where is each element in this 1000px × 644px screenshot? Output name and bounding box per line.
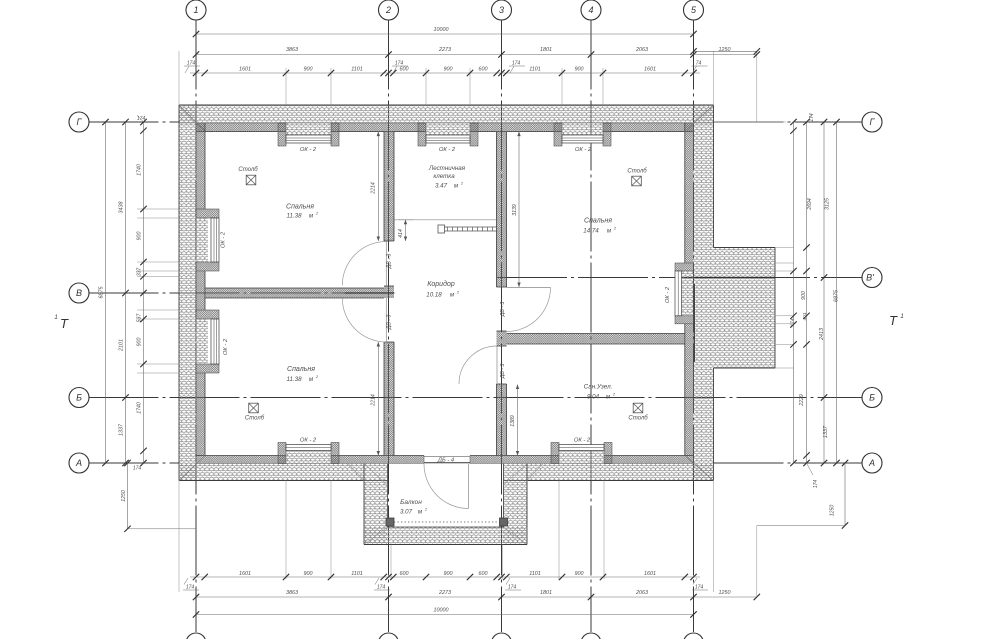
svg-text:1740: 1740 bbox=[137, 402, 143, 414]
svg-text:900: 900 bbox=[575, 67, 584, 73]
svg-text:174: 174 bbox=[187, 61, 196, 67]
svg-text:1601: 1601 bbox=[239, 67, 251, 73]
svg-text:1250: 1250 bbox=[719, 590, 731, 596]
svg-text:3.07: 3.07 bbox=[400, 509, 413, 516]
svg-text:2: 2 bbox=[385, 5, 391, 15]
svg-text:1: 1 bbox=[193, 5, 198, 15]
svg-text:1101: 1101 bbox=[351, 571, 363, 577]
svg-text:900: 900 bbox=[444, 67, 453, 73]
svg-text:900: 900 bbox=[137, 232, 143, 241]
svg-text:1101: 1101 bbox=[529, 67, 541, 73]
svg-text:2101: 2101 bbox=[119, 339, 125, 352]
svg-text:174: 174 bbox=[695, 585, 704, 591]
svg-text:ДВ - 3: ДВ - 3 bbox=[500, 302, 506, 318]
svg-text:14.74: 14.74 bbox=[583, 228, 599, 235]
svg-text:Столб: Столб bbox=[238, 167, 258, 173]
svg-text:Коридор: Коридор bbox=[427, 280, 455, 288]
svg-text:ОК - 2: ОК - 2 bbox=[300, 438, 317, 444]
svg-text:10000: 10000 bbox=[434, 608, 449, 614]
svg-text:Балкон: Балкон bbox=[400, 499, 422, 506]
svg-text:1250: 1250 bbox=[719, 47, 731, 53]
svg-text:174: 174 bbox=[133, 466, 142, 472]
svg-text:900: 900 bbox=[304, 571, 313, 577]
svg-text:Спальня: Спальня bbox=[287, 366, 315, 373]
svg-text:74: 74 bbox=[696, 61, 702, 67]
svg-text:Столб: Столб bbox=[627, 169, 647, 175]
svg-text:1801: 1801 bbox=[540, 590, 552, 596]
svg-text:ДБ - 4: ДБ - 4 bbox=[437, 458, 454, 464]
svg-text:Т: Т bbox=[60, 316, 69, 331]
svg-text:1601: 1601 bbox=[644, 67, 656, 73]
svg-text:174: 174 bbox=[186, 585, 195, 591]
svg-text:ОК - 2: ОК - 2 bbox=[221, 231, 227, 248]
svg-text:1: 1 bbox=[900, 314, 903, 320]
svg-text:3438: 3438 bbox=[119, 202, 125, 214]
svg-text:ОК - 2: ОК - 2 bbox=[574, 438, 591, 444]
svg-text:1: 1 bbox=[54, 315, 57, 321]
svg-text:600: 600 bbox=[400, 67, 409, 73]
svg-text:ДВ - 3: ДВ - 3 bbox=[500, 364, 506, 380]
svg-text:В: В bbox=[76, 288, 82, 298]
svg-text:10.18: 10.18 bbox=[426, 292, 442, 299]
svg-text:174: 174 bbox=[809, 113, 815, 122]
svg-text:600: 600 bbox=[479, 571, 488, 577]
svg-text:174: 174 bbox=[137, 116, 146, 122]
svg-text:1337: 1337 bbox=[119, 423, 125, 436]
svg-text:2273: 2273 bbox=[438, 47, 451, 53]
svg-text:Т: Т bbox=[889, 313, 898, 328]
svg-text:1389: 1389 bbox=[510, 415, 516, 427]
svg-text:2413: 2413 bbox=[819, 328, 825, 341]
svg-text:6875: 6875 bbox=[834, 289, 840, 302]
svg-text:В': В' bbox=[866, 273, 874, 283]
svg-text:174: 174 bbox=[377, 585, 386, 591]
svg-text:2273: 2273 bbox=[438, 590, 451, 596]
svg-text:174: 174 bbox=[512, 61, 521, 67]
svg-text:1337: 1337 bbox=[823, 425, 829, 438]
svg-text:337: 337 bbox=[137, 268, 143, 277]
svg-text:401: 401 bbox=[802, 312, 808, 320]
svg-text:11.38: 11.38 bbox=[286, 213, 302, 220]
svg-text:ОК - 2: ОК - 2 bbox=[300, 147, 317, 153]
svg-text:ДВ - 3: ДВ - 3 bbox=[387, 254, 393, 270]
svg-text:ОК - 2: ОК - 2 bbox=[665, 286, 671, 303]
svg-text:414: 414 bbox=[398, 229, 404, 238]
svg-text:3: 3 bbox=[499, 5, 504, 15]
svg-text:Столб: Столб bbox=[628, 416, 648, 422]
svg-text:1250: 1250 bbox=[121, 490, 127, 502]
svg-text:2214: 2214 bbox=[371, 394, 377, 407]
svg-text:2063: 2063 bbox=[635, 590, 648, 596]
svg-text:174: 174 bbox=[813, 480, 819, 489]
svg-text:9.04: 9.04 bbox=[587, 394, 600, 401]
svg-text:Сан.Узел.: Сан.Узел. bbox=[584, 384, 613, 391]
svg-text:Б: Б bbox=[869, 393, 875, 403]
svg-text:2063: 2063 bbox=[635, 47, 648, 53]
svg-text:174: 174 bbox=[508, 585, 517, 591]
svg-text:1740: 1740 bbox=[137, 164, 143, 176]
svg-text:А: А bbox=[868, 458, 875, 468]
svg-text:11.38: 11.38 bbox=[286, 376, 302, 383]
svg-text:клетка: клетка bbox=[433, 173, 455, 180]
svg-text:ДВ - 3: ДВ - 3 bbox=[387, 315, 393, 331]
svg-text:1101: 1101 bbox=[529, 571, 541, 577]
svg-text:Столб: Столб bbox=[245, 416, 265, 422]
svg-text:900: 900 bbox=[575, 571, 584, 577]
svg-text:900: 900 bbox=[137, 338, 143, 347]
svg-text:3863: 3863 bbox=[286, 590, 298, 596]
svg-text:2214: 2214 bbox=[371, 182, 377, 195]
svg-text:2694: 2694 bbox=[807, 198, 813, 211]
svg-text:537: 537 bbox=[137, 313, 143, 323]
svg-text:1601: 1601 bbox=[644, 571, 656, 577]
svg-text:1601: 1601 bbox=[239, 571, 251, 577]
svg-text:ОК - 2: ОК - 2 bbox=[575, 147, 592, 153]
svg-text:900: 900 bbox=[304, 67, 313, 73]
svg-text:1250: 1250 bbox=[830, 505, 836, 517]
svg-text:Спальня: Спальня bbox=[584, 218, 612, 225]
svg-text:3.47: 3.47 bbox=[435, 183, 448, 190]
svg-text:3139: 3139 bbox=[512, 204, 518, 216]
svg-text:4: 4 bbox=[588, 5, 593, 15]
svg-text:6875: 6875 bbox=[99, 286, 105, 299]
svg-text:Лестничная: Лестничная bbox=[428, 165, 466, 172]
svg-text:Б: Б bbox=[76, 393, 82, 403]
svg-text:А: А bbox=[75, 458, 82, 468]
svg-text:600: 600 bbox=[400, 571, 409, 577]
svg-text:900: 900 bbox=[444, 571, 453, 577]
svg-text:900: 900 bbox=[801, 291, 807, 300]
svg-text:3863: 3863 bbox=[286, 47, 298, 53]
svg-text:1801: 1801 bbox=[540, 47, 552, 53]
svg-text:174: 174 bbox=[790, 318, 796, 326]
svg-text:600: 600 bbox=[479, 67, 488, 73]
svg-text:174: 174 bbox=[395, 61, 404, 67]
svg-text:ОК - 2: ОК - 2 bbox=[223, 338, 229, 355]
svg-text:3125: 3125 bbox=[825, 197, 831, 210]
svg-text:2229: 2229 bbox=[799, 394, 805, 407]
svg-text:Спальня: Спальня bbox=[286, 204, 314, 211]
svg-text:1101: 1101 bbox=[351, 67, 363, 73]
svg-text:ОК - 2: ОК - 2 bbox=[439, 147, 456, 153]
svg-text:10000: 10000 bbox=[434, 27, 449, 33]
